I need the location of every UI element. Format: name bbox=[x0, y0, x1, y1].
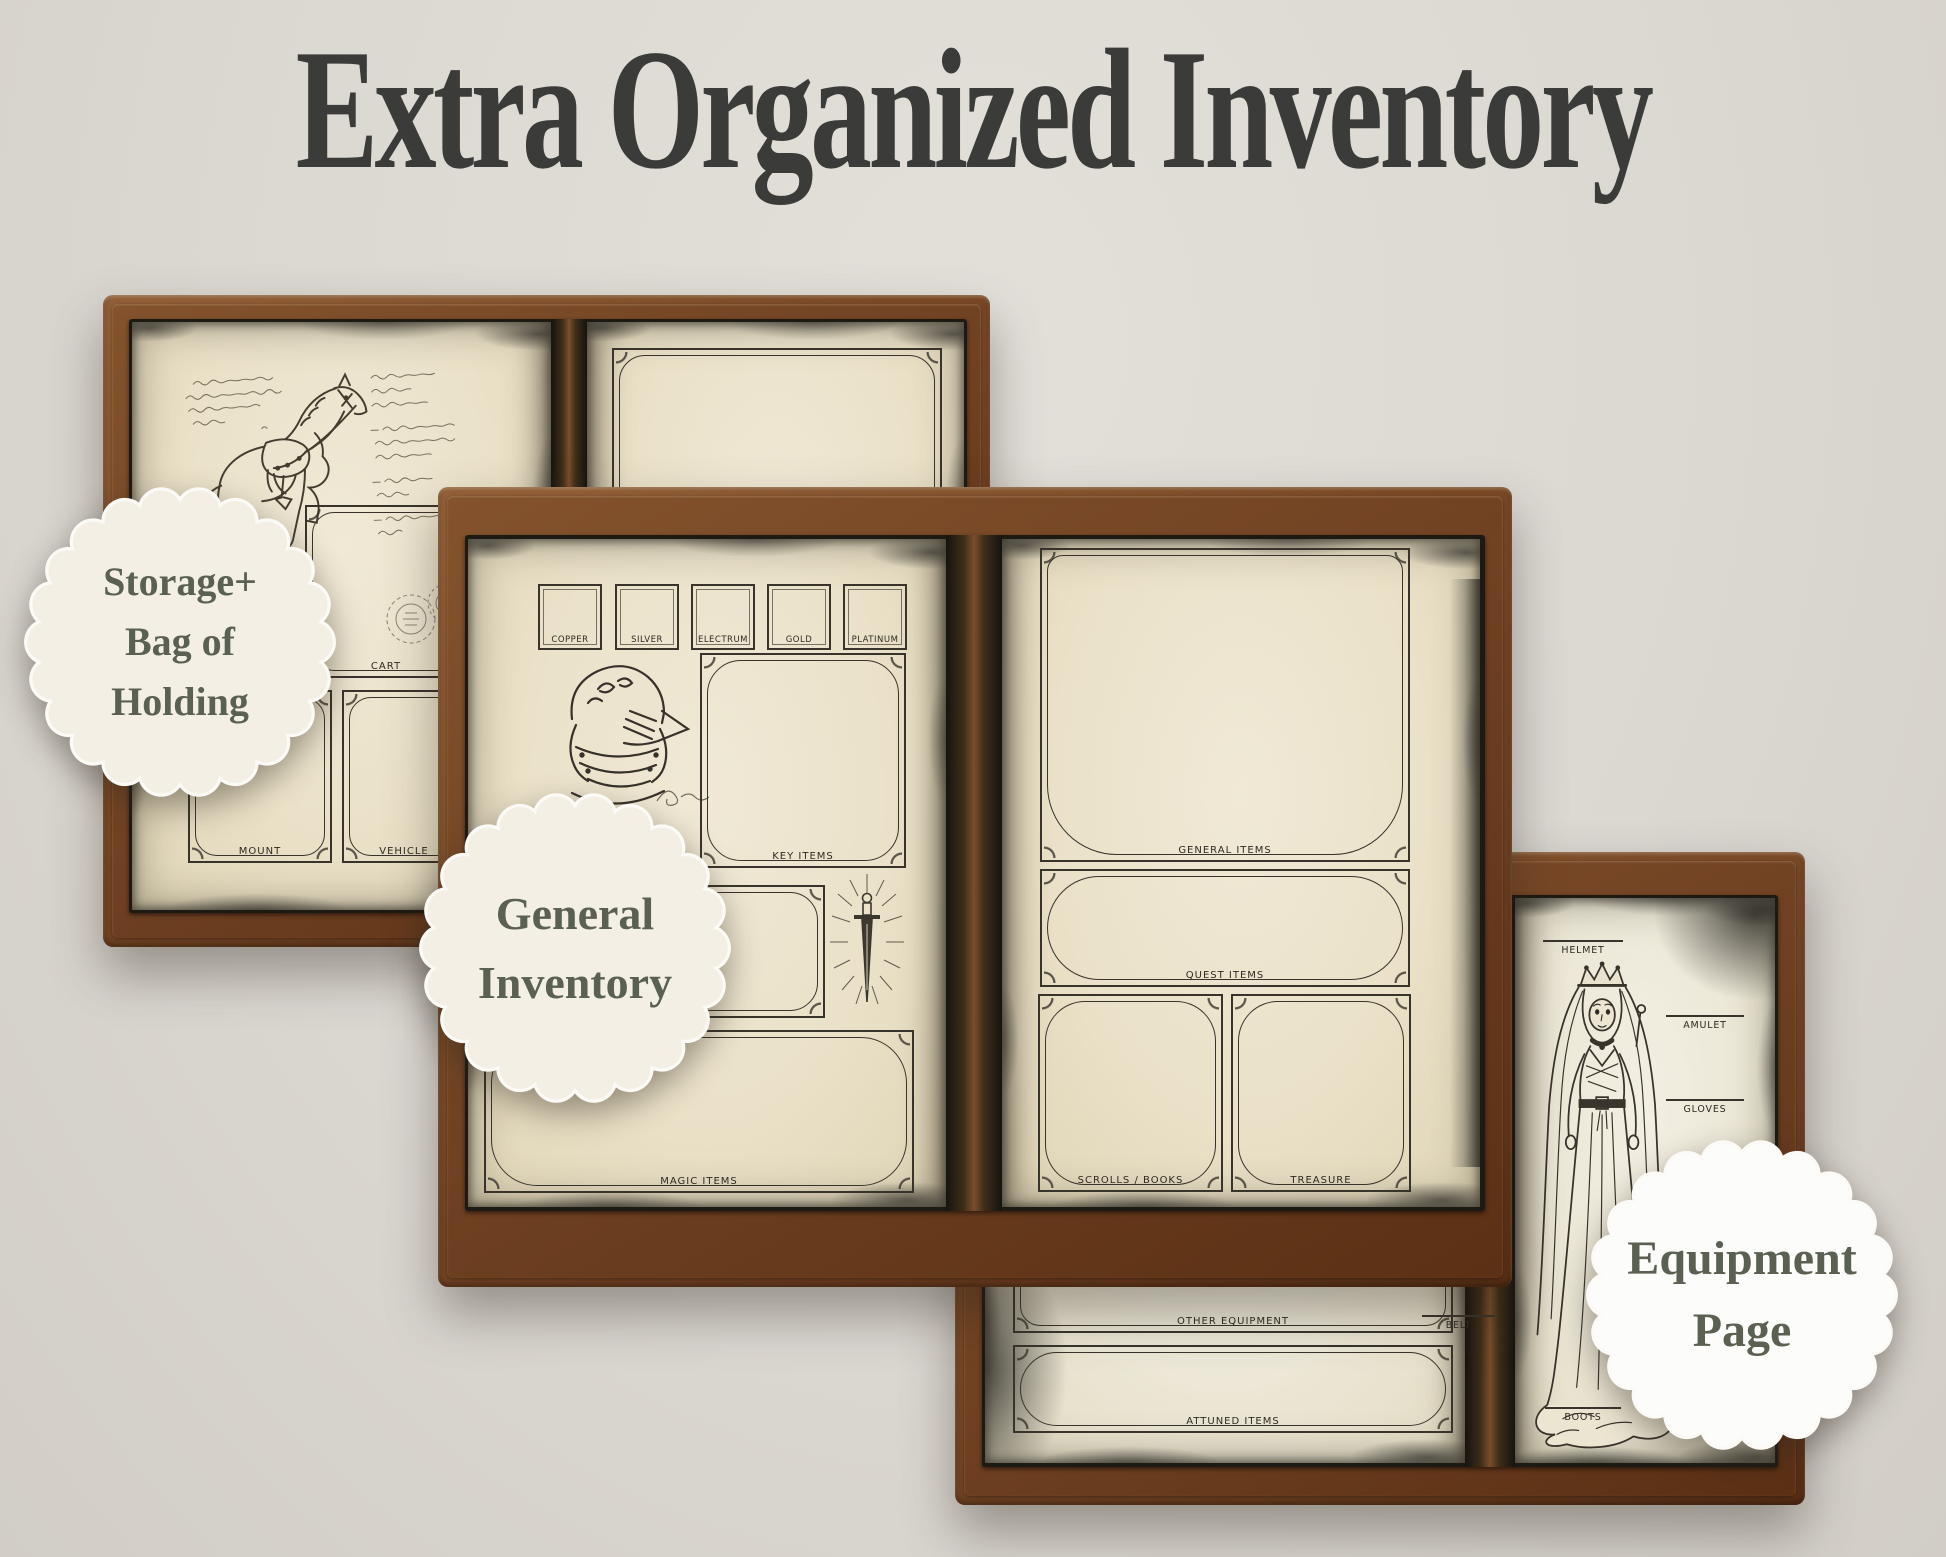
currency-box-silver: SILVER bbox=[615, 584, 679, 650]
currency-label: PLATINUM bbox=[845, 635, 905, 645]
frame-label: MOUNT bbox=[190, 846, 330, 857]
slot-line bbox=[1543, 940, 1623, 942]
currency-label: GOLD bbox=[769, 635, 829, 645]
frame-label: MAGIC ITEMS bbox=[486, 1176, 912, 1187]
currency-box-electrum: ELECTRUM bbox=[691, 584, 755, 650]
badge-line: Inventory bbox=[478, 948, 672, 1017]
frame-label: ATTUNED ITEMS bbox=[1015, 1416, 1451, 1427]
currency-label: COPPER bbox=[540, 635, 600, 645]
slot-line bbox=[1666, 1099, 1744, 1101]
treasure-frame: TREASURE bbox=[1231, 994, 1411, 1192]
equipment-slot-helmet: HELMET bbox=[1543, 940, 1623, 956]
product-showcase: Extra Organized Inventory bbox=[0, 0, 1946, 1557]
badge-line: Page bbox=[1693, 1295, 1792, 1367]
equipment-page-badge: Equipment Page bbox=[1572, 1125, 1912, 1465]
attuned-items-frame: ATTUNED ITEMS bbox=[1013, 1345, 1453, 1433]
currency-box-copper: COPPER bbox=[538, 584, 602, 650]
equipment-slot-amulet: AMULET bbox=[1666, 1015, 1744, 1031]
equipment-slot-gloves: GLOVES bbox=[1666, 1099, 1744, 1115]
frame-label: QUEST ITEMS bbox=[1042, 970, 1408, 981]
badge-line: Bag of bbox=[125, 612, 235, 672]
radiant-sword-sketch-icon bbox=[828, 872, 906, 1017]
slot-line bbox=[1666, 1015, 1744, 1017]
quest-items-frame: QUEST ITEMS bbox=[1040, 869, 1410, 987]
book-spine bbox=[946, 535, 1002, 1211]
frame-label: GENERAL ITEMS bbox=[1042, 845, 1408, 856]
badge-line: General bbox=[496, 879, 654, 948]
currency-label: ELECTRUM bbox=[693, 635, 753, 645]
frame-label: TREASURE bbox=[1233, 1175, 1409, 1186]
scrolls-books-frame: SCROLLS / BOOKS bbox=[1038, 994, 1223, 1192]
slot-label: BELT bbox=[1422, 1320, 1495, 1331]
badge-line: Storage+ bbox=[103, 552, 257, 612]
slot-label: GLOVES bbox=[1666, 1104, 1744, 1115]
frame-label: OTHER EQUIPMENT bbox=[1015, 1316, 1451, 1327]
badge-text: Storage+ Bag of Holding bbox=[44, 506, 316, 778]
badge-line: Holding bbox=[111, 672, 249, 732]
currency-label: SILVER bbox=[617, 635, 677, 645]
burnt-edge bbox=[1450, 579, 1480, 1167]
slot-label: AMULET bbox=[1666, 1020, 1744, 1031]
currency-box-platinum: PLATINUM bbox=[843, 584, 907, 650]
currency-box-gold: GOLD bbox=[767, 584, 831, 650]
badge-text: General Inventory bbox=[439, 812, 711, 1084]
badge-line: Equipment bbox=[1627, 1223, 1856, 1295]
equipment-slot-belt: BELT bbox=[1422, 1315, 1495, 1331]
general-inventory-badge: General Inventory bbox=[405, 778, 745, 1118]
slot-label: HELMET bbox=[1543, 945, 1623, 956]
badge-text: Equipment Page bbox=[1606, 1159, 1878, 1431]
storage-badge: Storage+ Bag of Holding bbox=[10, 472, 350, 812]
general-right-page: GENERAL ITEMS QUEST ITEMS SCROLLS / BOOK… bbox=[1002, 539, 1480, 1207]
slot-line bbox=[1422, 1315, 1495, 1317]
page-title: Extra Organized Inventory bbox=[272, 16, 1673, 205]
frame-label: SCROLLS / BOOKS bbox=[1040, 1175, 1221, 1186]
general-items-frame: GENERAL ITEMS bbox=[1040, 548, 1410, 862]
